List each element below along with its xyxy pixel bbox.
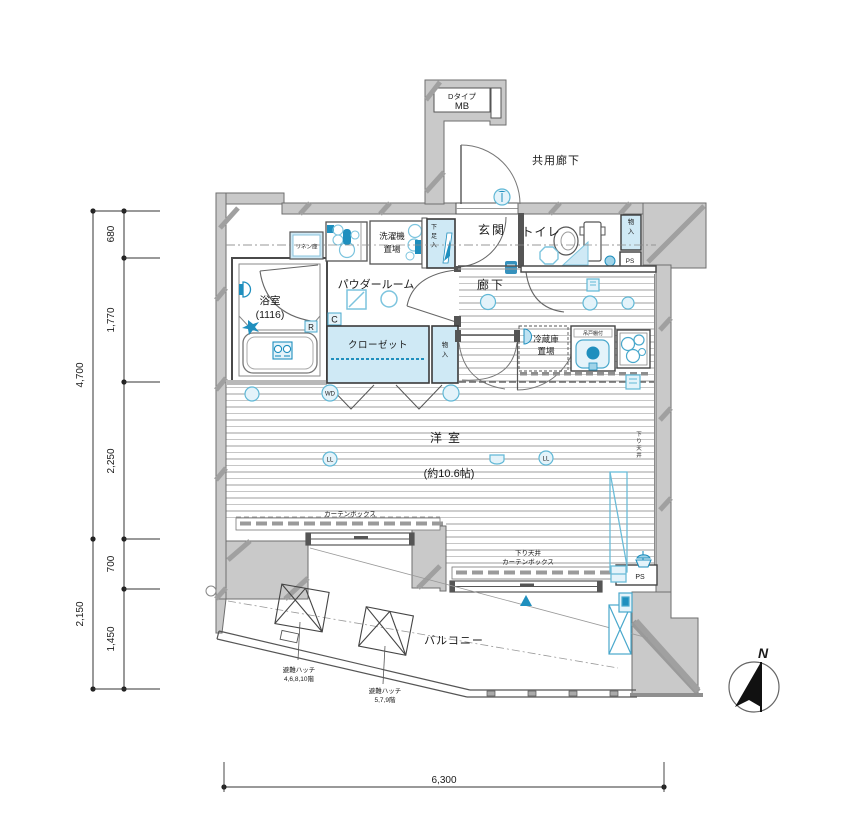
- svg-text:入: 入: [628, 229, 635, 236]
- svg-text:MB: MB: [455, 101, 469, 112]
- svg-text:680: 680: [106, 225, 117, 242]
- svg-text:バルコニー: バルコニー: [424, 634, 484, 647]
- svg-text:物: 物: [442, 340, 449, 349]
- svg-text:WD: WD: [325, 392, 336, 398]
- svg-text:避難ハッチ: 避難ハッチ: [369, 686, 402, 695]
- svg-text:玄関: 玄関: [478, 222, 506, 237]
- svg-text:PS: PS: [635, 574, 645, 581]
- svg-text:LL: LL: [327, 458, 334, 464]
- svg-text:4,6,8,10階: 4,6,8,10階: [284, 674, 314, 683]
- svg-text:1,770: 1,770: [106, 307, 117, 332]
- svg-text:下: 下: [636, 431, 642, 438]
- svg-text:LL: LL: [543, 457, 550, 463]
- svg-text:700: 700: [106, 555, 117, 572]
- svg-text:入: 入: [431, 242, 437, 249]
- svg-text:クローゼット: クローゼット: [348, 339, 408, 351]
- svg-text:5,7,9階: 5,7,9階: [375, 695, 396, 704]
- svg-text:(約10.6帖): (約10.6帖): [424, 466, 475, 480]
- svg-text:天: 天: [636, 445, 642, 452]
- svg-text:洋室: 洋室: [430, 430, 466, 445]
- svg-text:1,450: 1,450: [106, 626, 117, 651]
- svg-text:入: 入: [442, 352, 449, 359]
- svg-text:置場: 置場: [537, 346, 555, 356]
- svg-text:冷蔵庫: 冷蔵庫: [533, 334, 559, 344]
- svg-text:浴室: 浴室: [260, 294, 281, 307]
- svg-text:吊戸棚付: 吊戸棚付: [583, 330, 603, 337]
- svg-text:カーテンボックス: カーテンボックス: [502, 558, 554, 566]
- svg-text:(1116): (1116): [256, 309, 285, 321]
- svg-text:共用廊下: 共用廊下: [532, 153, 580, 167]
- svg-text:避難ハッチ: 避難ハッチ: [283, 665, 316, 674]
- svg-text:PS: PS: [626, 258, 635, 265]
- svg-text:パウダールーム: パウダールーム: [338, 277, 415, 291]
- svg-text:井: 井: [636, 451, 642, 459]
- svg-text:Dタイプ: Dタイプ: [448, 92, 476, 101]
- svg-text:廊下: 廊下: [477, 277, 505, 292]
- svg-text:6,300: 6,300: [431, 775, 456, 786]
- svg-text:R: R: [308, 323, 314, 332]
- svg-text:4,700: 4,700: [75, 362, 86, 387]
- svg-text:下り天井: 下り天井: [515, 548, 542, 557]
- svg-text:トイレ: トイレ: [521, 225, 560, 239]
- svg-text:2,150: 2,150: [75, 601, 86, 626]
- svg-text:2,250: 2,250: [106, 448, 117, 473]
- svg-text:物: 物: [628, 217, 635, 226]
- svg-text:り: り: [636, 438, 642, 445]
- svg-text:置場: 置場: [383, 244, 401, 254]
- svg-text:C: C: [331, 315, 338, 325]
- svg-text:下: 下: [431, 224, 437, 231]
- svg-text:リネン庫: リネン庫: [295, 243, 318, 251]
- svg-text:足: 足: [431, 233, 437, 240]
- svg-text:洗濯機: 洗濯機: [379, 231, 405, 241]
- svg-text:N: N: [758, 645, 769, 661]
